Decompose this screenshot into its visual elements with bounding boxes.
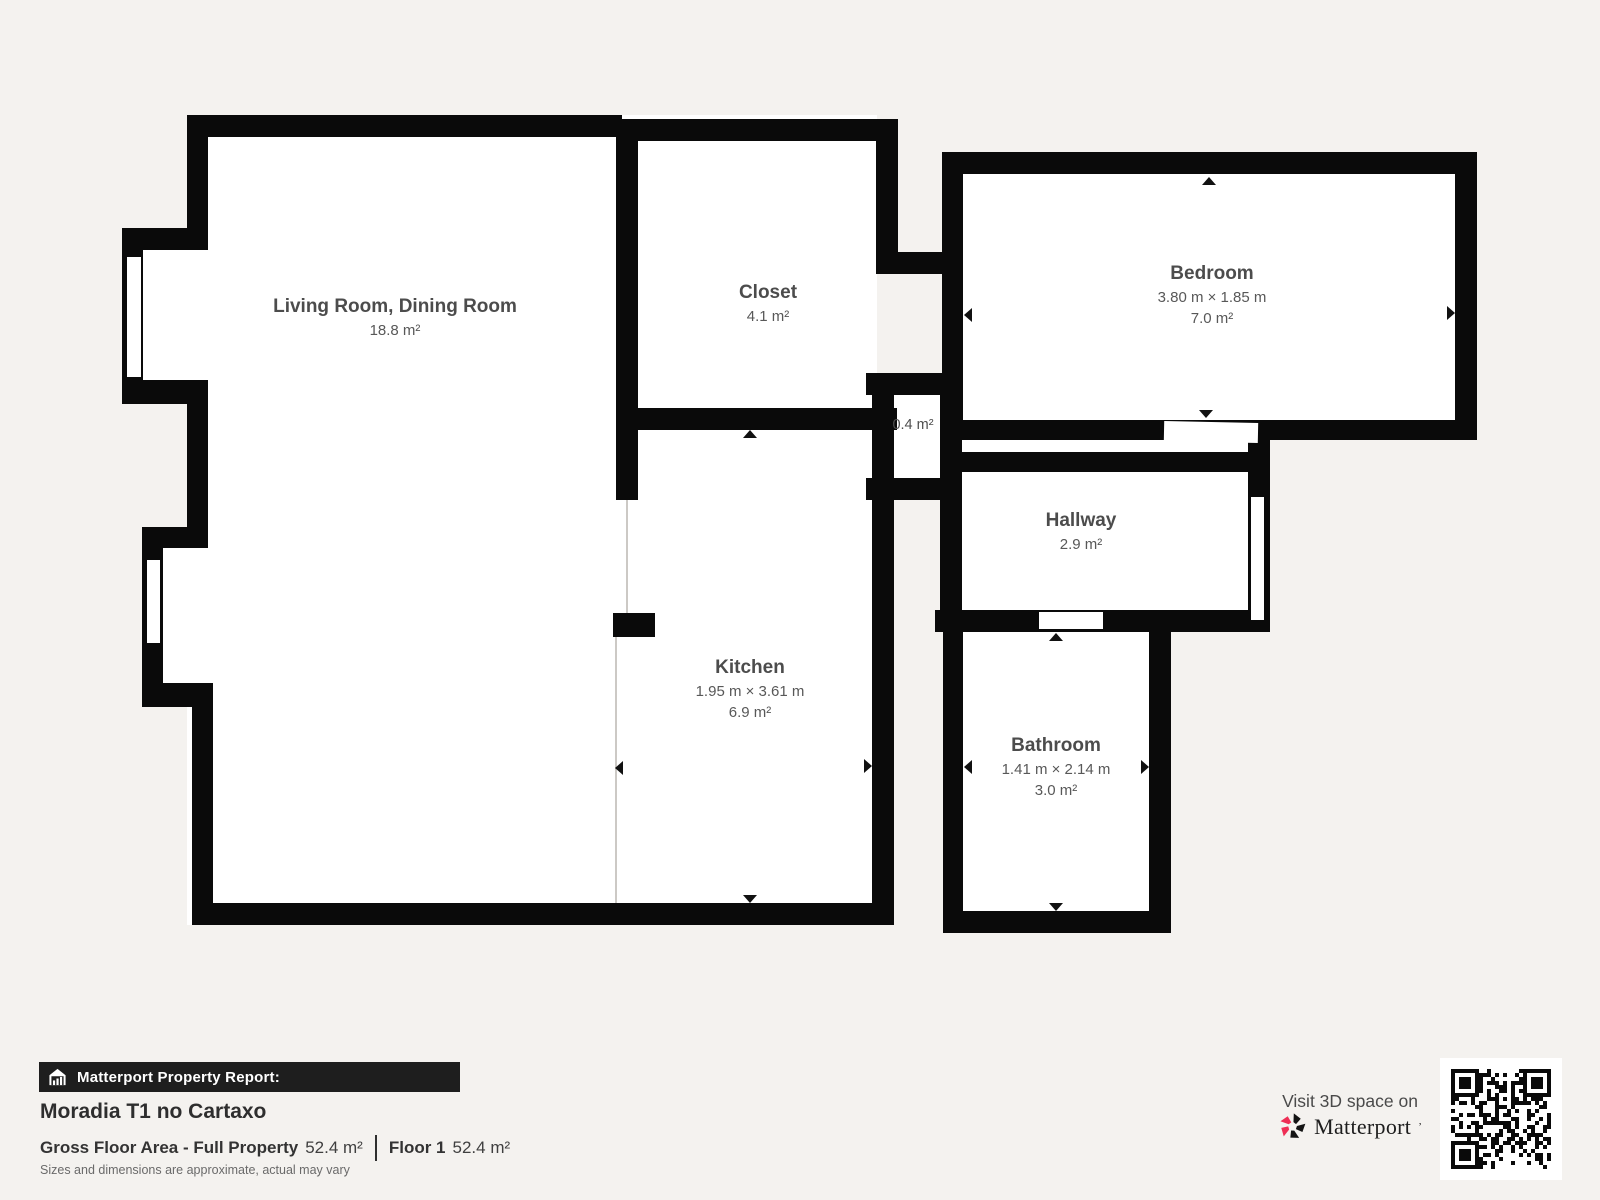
floor-value: 52.4 m² [453,1138,511,1158]
house-chart-icon [48,1067,67,1087]
dimension-arrow-up [743,430,757,438]
room-dimensions: 3.80 m × 1.85 m [1032,289,1392,306]
door-opening [1164,421,1258,443]
room-area: 7.0 m² [1032,310,1392,327]
room-label-bedroom: Bedroom 3.80 m × 1.85 m 7.0 m² [1032,263,1392,327]
wall-segment [122,380,208,404]
wall-segment [943,911,1171,933]
open-boundary-line [626,500,628,613]
wall-segment [942,152,963,440]
wall-segment [613,613,655,637]
door-opening [1251,497,1264,620]
wall-segment [187,115,622,137]
room-dimensions: 1.95 m × 3.61 m [635,683,865,700]
window-opening [127,257,141,377]
room-name: Living Room, Dining Room [215,296,575,318]
dimension-arrow-left [615,761,623,775]
wall-segment [142,683,213,707]
disclaimer-text: Sizes and dimensions are approximate, ac… [40,1163,350,1177]
brand-trademark: ʼ [1418,1121,1422,1133]
wall-segment [122,228,208,250]
wall-segment [622,119,897,141]
dimension-arrow-down [1049,903,1063,911]
room-label-bathroom: Bathroom 1.41 m × 2.14 m 3.0 m² [941,735,1171,799]
area-summary: Gross Floor Area - Full Property 52.4 m²… [40,1135,510,1161]
room-label-nook: 0.4 m² [853,417,973,433]
window-opening [147,560,160,643]
room-name: Hallway [961,510,1201,532]
wall-segment [187,115,208,228]
dimension-arrow-up [1049,633,1063,641]
wall-segment [192,903,894,925]
room-label-kitchen: Kitchen 1.95 m × 3.61 m 6.9 m² [635,657,865,721]
room-area: 0.4 m² [892,417,933,433]
wall-segment [192,707,213,925]
room-name: Bathroom [941,735,1171,757]
floor-plan-report-page: Living Room, Dining Room 18.8 m² Closet … [0,0,1600,1200]
dimension-arrow-left [964,308,972,322]
room-area: 3.0 m² [941,782,1171,799]
qr-code-pattern [1440,1058,1562,1180]
dimension-arrow-down [743,895,757,903]
window-niche-fill [143,250,208,380]
visit-3d-space-text: Visit 3D space on [1229,1091,1471,1112]
property-title: Moradia T1 no Cartaxo [40,1100,266,1124]
matterport-logo: Matterportʼ [1229,1112,1471,1141]
wall-segment [142,527,208,548]
wall-segment [872,373,894,925]
wall-segment [187,402,208,527]
dimension-arrow-down [1199,410,1213,418]
living-kitchen-closet-fill [187,115,877,925]
wall-segment [1455,152,1477,440]
matterport-wordmark: Matterport [1314,1114,1411,1140]
wall-segment [940,452,1252,472]
room-name: Kitchen [635,657,865,679]
wall-segment [876,252,942,274]
door-opening [1039,612,1103,629]
divider [375,1135,377,1161]
floor-label: Floor 1 [389,1138,446,1158]
room-dimensions: 1.41 m × 2.14 m [941,761,1171,778]
wall-segment [876,119,898,255]
gross-area-value: 52.4 m² [305,1138,363,1158]
wall-segment [942,152,1477,174]
room-area: 4.1 m² [648,308,888,325]
report-header-bar: Matterport Property Report: [39,1062,460,1092]
wall-segment [616,137,638,500]
qr-code [1440,1058,1562,1180]
room-label-closet: Closet 4.1 m² [648,282,888,325]
room-area: 2.9 m² [961,536,1201,553]
gross-area-label: Gross Floor Area - Full Property [40,1138,298,1158]
room-area: 6.9 m² [635,704,865,721]
window-niche-fill [163,548,213,683]
room-name: Closet [648,282,888,304]
dimension-arrow-right [1447,306,1455,320]
room-label-hallway: Hallway 2.9 m² [961,510,1201,553]
report-header-text: Matterport Property Report: [77,1069,280,1086]
room-name: Bedroom [1032,263,1392,285]
wall-segment [940,452,962,632]
room-label-living-room: Living Room, Dining Room 18.8 m² [215,296,575,339]
dimension-arrow-right [864,759,872,773]
room-area: 18.8 m² [215,322,575,339]
matterport-pinwheel-icon [1278,1112,1307,1141]
dimension-arrow-up [1202,177,1216,185]
